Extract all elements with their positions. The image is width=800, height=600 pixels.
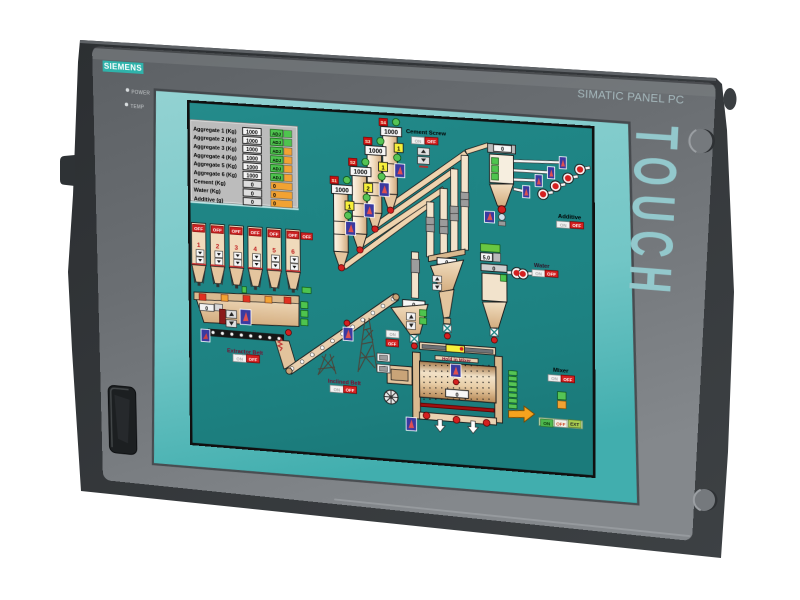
svg-text:2: 2 (367, 186, 370, 192)
svg-text:S4: S4 (381, 120, 387, 125)
svg-text:OFF: OFF (251, 230, 260, 236)
svg-text:OFF: OFF (269, 231, 278, 237)
svg-text:OFF: OFF (547, 272, 556, 278)
svg-text:TOUCH: TOUCH (616, 123, 691, 303)
svg-text:0: 0 (501, 147, 504, 153)
svg-text:Mixer: Mixer (553, 367, 569, 374)
svg-text:5.0: 5.0 (483, 255, 490, 262)
svg-text:OFF: OFF (213, 227, 222, 233)
svg-text:1000: 1000 (246, 130, 258, 137)
svg-text:ADJ: ADJ (272, 140, 281, 146)
svg-text:OFF: OFF (346, 387, 355, 393)
svg-text:4: 4 (253, 246, 257, 253)
svg-text:3: 3 (235, 245, 239, 252)
svg-text:ON: ON (535, 271, 542, 277)
svg-text:1000: 1000 (246, 173, 258, 180)
svg-text:0: 0 (273, 193, 276, 199)
svg-text:POWER: POWER (131, 89, 150, 96)
svg-text:1: 1 (197, 242, 201, 249)
svg-text:1000: 1000 (384, 129, 398, 137)
svg-text:OFF: OFF (249, 357, 258, 363)
svg-text:ADJ: ADJ (272, 149, 281, 155)
svg-text:OFF: OFF (563, 377, 572, 383)
svg-text:0: 0 (456, 392, 459, 398)
svg-text:S1: S1 (331, 178, 337, 183)
svg-text:1000: 1000 (246, 138, 258, 145)
svg-text:ON: ON (333, 387, 340, 393)
svg-text:0: 0 (492, 267, 495, 273)
svg-text:OFF: OFF (232, 229, 241, 235)
svg-text:0: 0 (273, 184, 276, 190)
svg-text:OFF: OFF (302, 234, 311, 240)
svg-text:S3: S3 (365, 139, 371, 144)
svg-text:ADJ: ADJ (273, 175, 282, 181)
svg-text:ON: ON (389, 332, 395, 338)
svg-text:ON: ON (551, 376, 558, 382)
svg-text:1000: 1000 (246, 147, 258, 154)
svg-text:1000: 1000 (354, 169, 368, 177)
svg-text:1000: 1000 (246, 165, 258, 172)
svg-text:ON: ON (236, 356, 242, 362)
svg-text:TEMP: TEMP (130, 104, 144, 111)
svg-text:OFF: OFF (288, 233, 297, 239)
svg-text:1: 1 (348, 204, 351, 210)
svg-text:OFF: OFF (556, 421, 566, 427)
svg-text:ADJ: ADJ (272, 166, 281, 172)
svg-text:1000: 1000 (335, 187, 349, 195)
svg-text:Water: Water (534, 263, 550, 270)
svg-text:1000: 1000 (369, 148, 383, 156)
svg-text:0: 0 (273, 201, 276, 207)
svg-text:5: 5 (272, 247, 276, 254)
svg-text:OFF: OFF (194, 226, 203, 232)
svg-text:ADJ: ADJ (272, 157, 281, 163)
svg-text:OFF: OFF (572, 223, 581, 229)
svg-text:0: 0 (205, 306, 208, 312)
svg-text:1: 1 (397, 146, 400, 152)
svg-text:6: 6 (291, 249, 295, 256)
svg-text:EXT: EXT (570, 422, 579, 428)
svg-text:ON: ON (415, 138, 422, 144)
svg-text:0: 0 (251, 191, 254, 197)
svg-text:1000: 1000 (246, 156, 258, 163)
svg-text:2: 2 (216, 243, 220, 250)
svg-text:1: 1 (382, 165, 385, 171)
svg-text:OFF: OFF (388, 341, 397, 347)
svg-text:0: 0 (251, 182, 254, 188)
svg-text:ADJ: ADJ (272, 131, 281, 137)
svg-text:OFF: OFF (427, 139, 436, 145)
svg-text:ON: ON (560, 223, 567, 229)
svg-text:ON: ON (543, 421, 550, 427)
svg-text:S2: S2 (350, 160, 356, 165)
svg-text:0: 0 (251, 200, 254, 206)
